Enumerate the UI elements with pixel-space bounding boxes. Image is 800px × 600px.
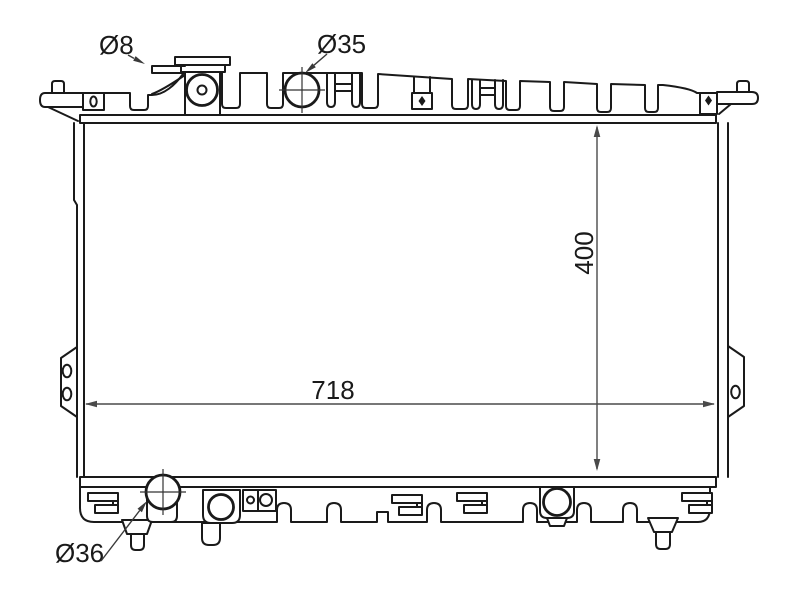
dim-label-height-400: 400 <box>569 231 599 274</box>
drain-tab <box>202 523 220 545</box>
top-middle-pillar <box>414 77 430 93</box>
clip-1 <box>88 493 118 513</box>
top-right-bracket-arm <box>717 92 758 104</box>
top-left-bracket-tab <box>52 81 64 93</box>
filler-neck-assembly <box>152 57 230 114</box>
side-plates <box>61 123 744 477</box>
left-mounting-bracket <box>61 347 77 417</box>
left-bracket-hole-upper <box>63 365 72 378</box>
top-rib-h-feature-2 <box>472 80 503 109</box>
clip-3 <box>457 493 487 513</box>
clip-2 <box>392 495 422 515</box>
center-boss <box>540 487 574 526</box>
filler-cap-circle <box>187 75 218 106</box>
top-middle-block-hole <box>419 96 426 106</box>
filler-cap-plate <box>175 57 230 65</box>
top-header-band <box>80 115 716 123</box>
height-arrow-bottom <box>594 459 601 471</box>
mounting-stud-left <box>122 520 152 550</box>
right-side-plate <box>718 123 728 477</box>
left-bracket-hole-lower <box>63 388 72 401</box>
top-left-gusset <box>48 107 78 121</box>
right-mounting-bracket <box>728 346 744 417</box>
right-bracket-hole <box>731 386 740 399</box>
top-tank <box>40 73 758 121</box>
core-headers <box>80 115 716 487</box>
dim-label-diameter-35: Ø35 <box>317 29 366 59</box>
drain-circle <box>209 495 234 520</box>
top-left-block-hole <box>90 97 96 107</box>
center-boss-foot <box>547 518 567 526</box>
mounting-stud-right <box>648 518 678 549</box>
dim-label-diameter-36: Ø36 <box>55 538 104 568</box>
filler-shoulder-curve <box>152 75 185 94</box>
leader-arrow-diameter-8 <box>133 56 145 64</box>
width-arrow-left <box>85 401 97 408</box>
top-right-bracket-tab <box>737 81 749 92</box>
dim-label-width-718: 718 <box>311 375 354 405</box>
radiator-technical-drawing: 718 400 Ø8 Ø35 Ø36 <box>0 0 800 600</box>
width-arrow-right <box>703 401 715 408</box>
center-boss-circle <box>544 489 571 516</box>
drain-plug <box>202 490 240 545</box>
top-rib-h-feature-1 <box>327 73 360 107</box>
radiator-diagram-svg: 718 400 Ø8 Ø35 Ø36 <box>0 0 800 600</box>
filler-cap-lip <box>181 65 225 72</box>
sensor-box <box>243 490 276 511</box>
clip-4 <box>682 493 712 513</box>
height-arrow-top <box>594 125 601 137</box>
top-right-gusset <box>719 104 731 114</box>
left-side-plate <box>74 123 84 477</box>
top-right-block-hole <box>705 96 712 106</box>
